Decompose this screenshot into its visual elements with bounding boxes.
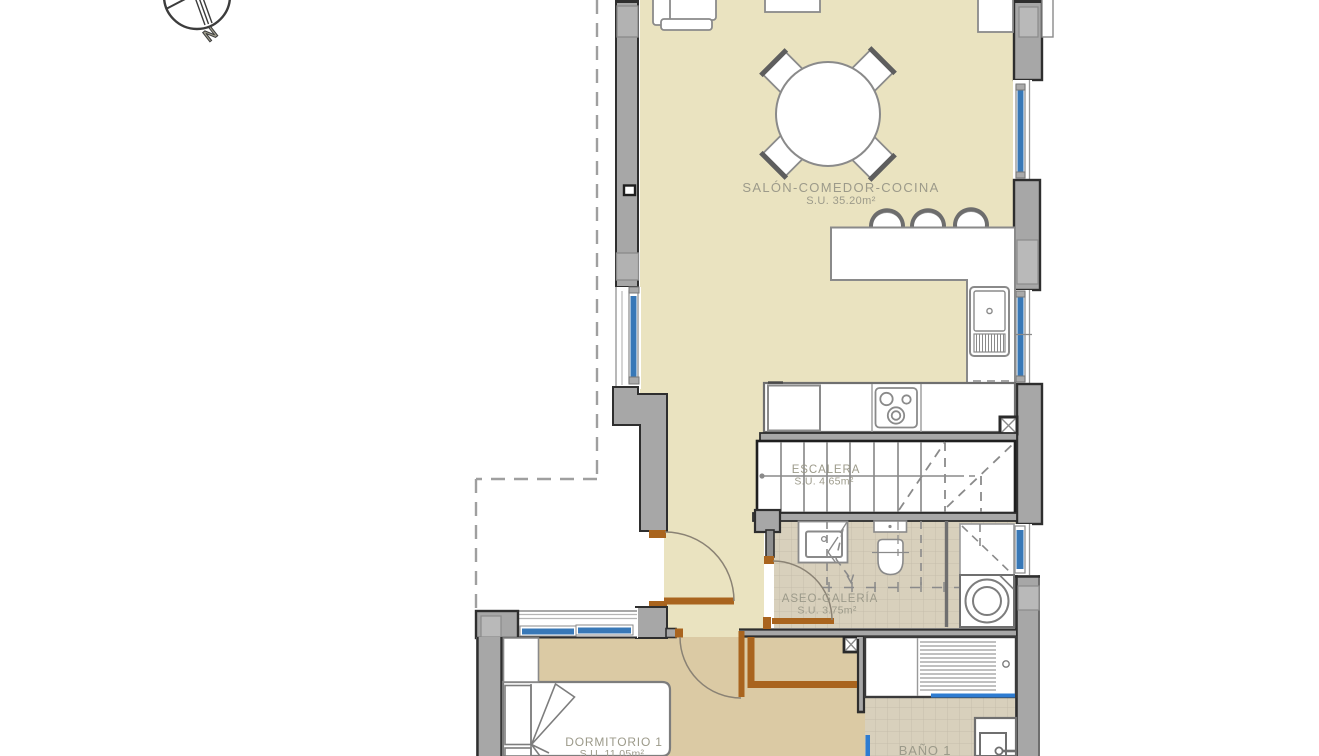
svg-text:N: N: [200, 23, 221, 46]
svg-text:ASEO-GALERÍA: ASEO-GALERÍA: [782, 592, 878, 605]
svg-text:S.U. 4.65m²: S.U. 4.65m²: [794, 476, 854, 488]
svg-text:SALÓN-COMEDOR-COCINA: SALÓN-COMEDOR-COCINA: [742, 180, 939, 195]
svg-text:S.U. 35.20m²: S.U. 35.20m²: [806, 195, 876, 207]
svg-text:ESCALERA: ESCALERA: [792, 464, 861, 476]
svg-text:S.U. 11.05m²: S.U. 11.05m²: [580, 748, 645, 756]
svg-text:S.U. 3.75m²: S.U. 3.75m²: [797, 605, 857, 617]
svg-text:BAÑO 1: BAÑO 1: [899, 743, 951, 756]
svg-text:DORMITORIO 1: DORMITORIO 1: [565, 735, 662, 749]
